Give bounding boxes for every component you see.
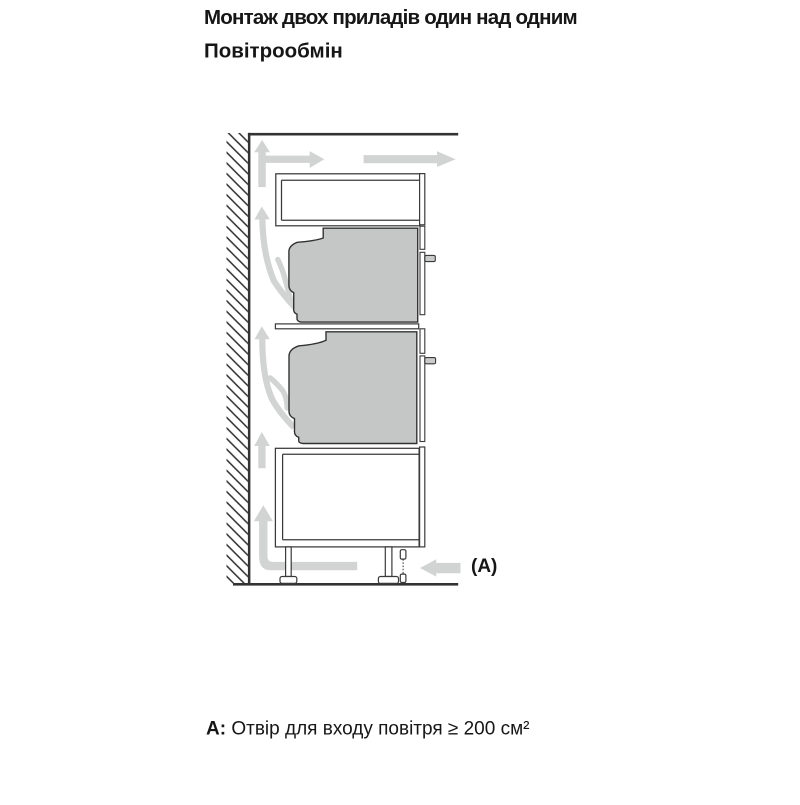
- svg-text:Монтаж двох приладів один над: Монтаж двох приладів один над одним: [204, 6, 577, 29]
- svg-text:А: Отвір для входу повітря ≥ 2: А: Отвір для входу повітря ≥ 200 см²: [206, 718, 530, 739]
- svg-text:(А): (А): [471, 556, 497, 577]
- svg-text:Повітрообмін: Повітрообмін: [204, 40, 343, 63]
